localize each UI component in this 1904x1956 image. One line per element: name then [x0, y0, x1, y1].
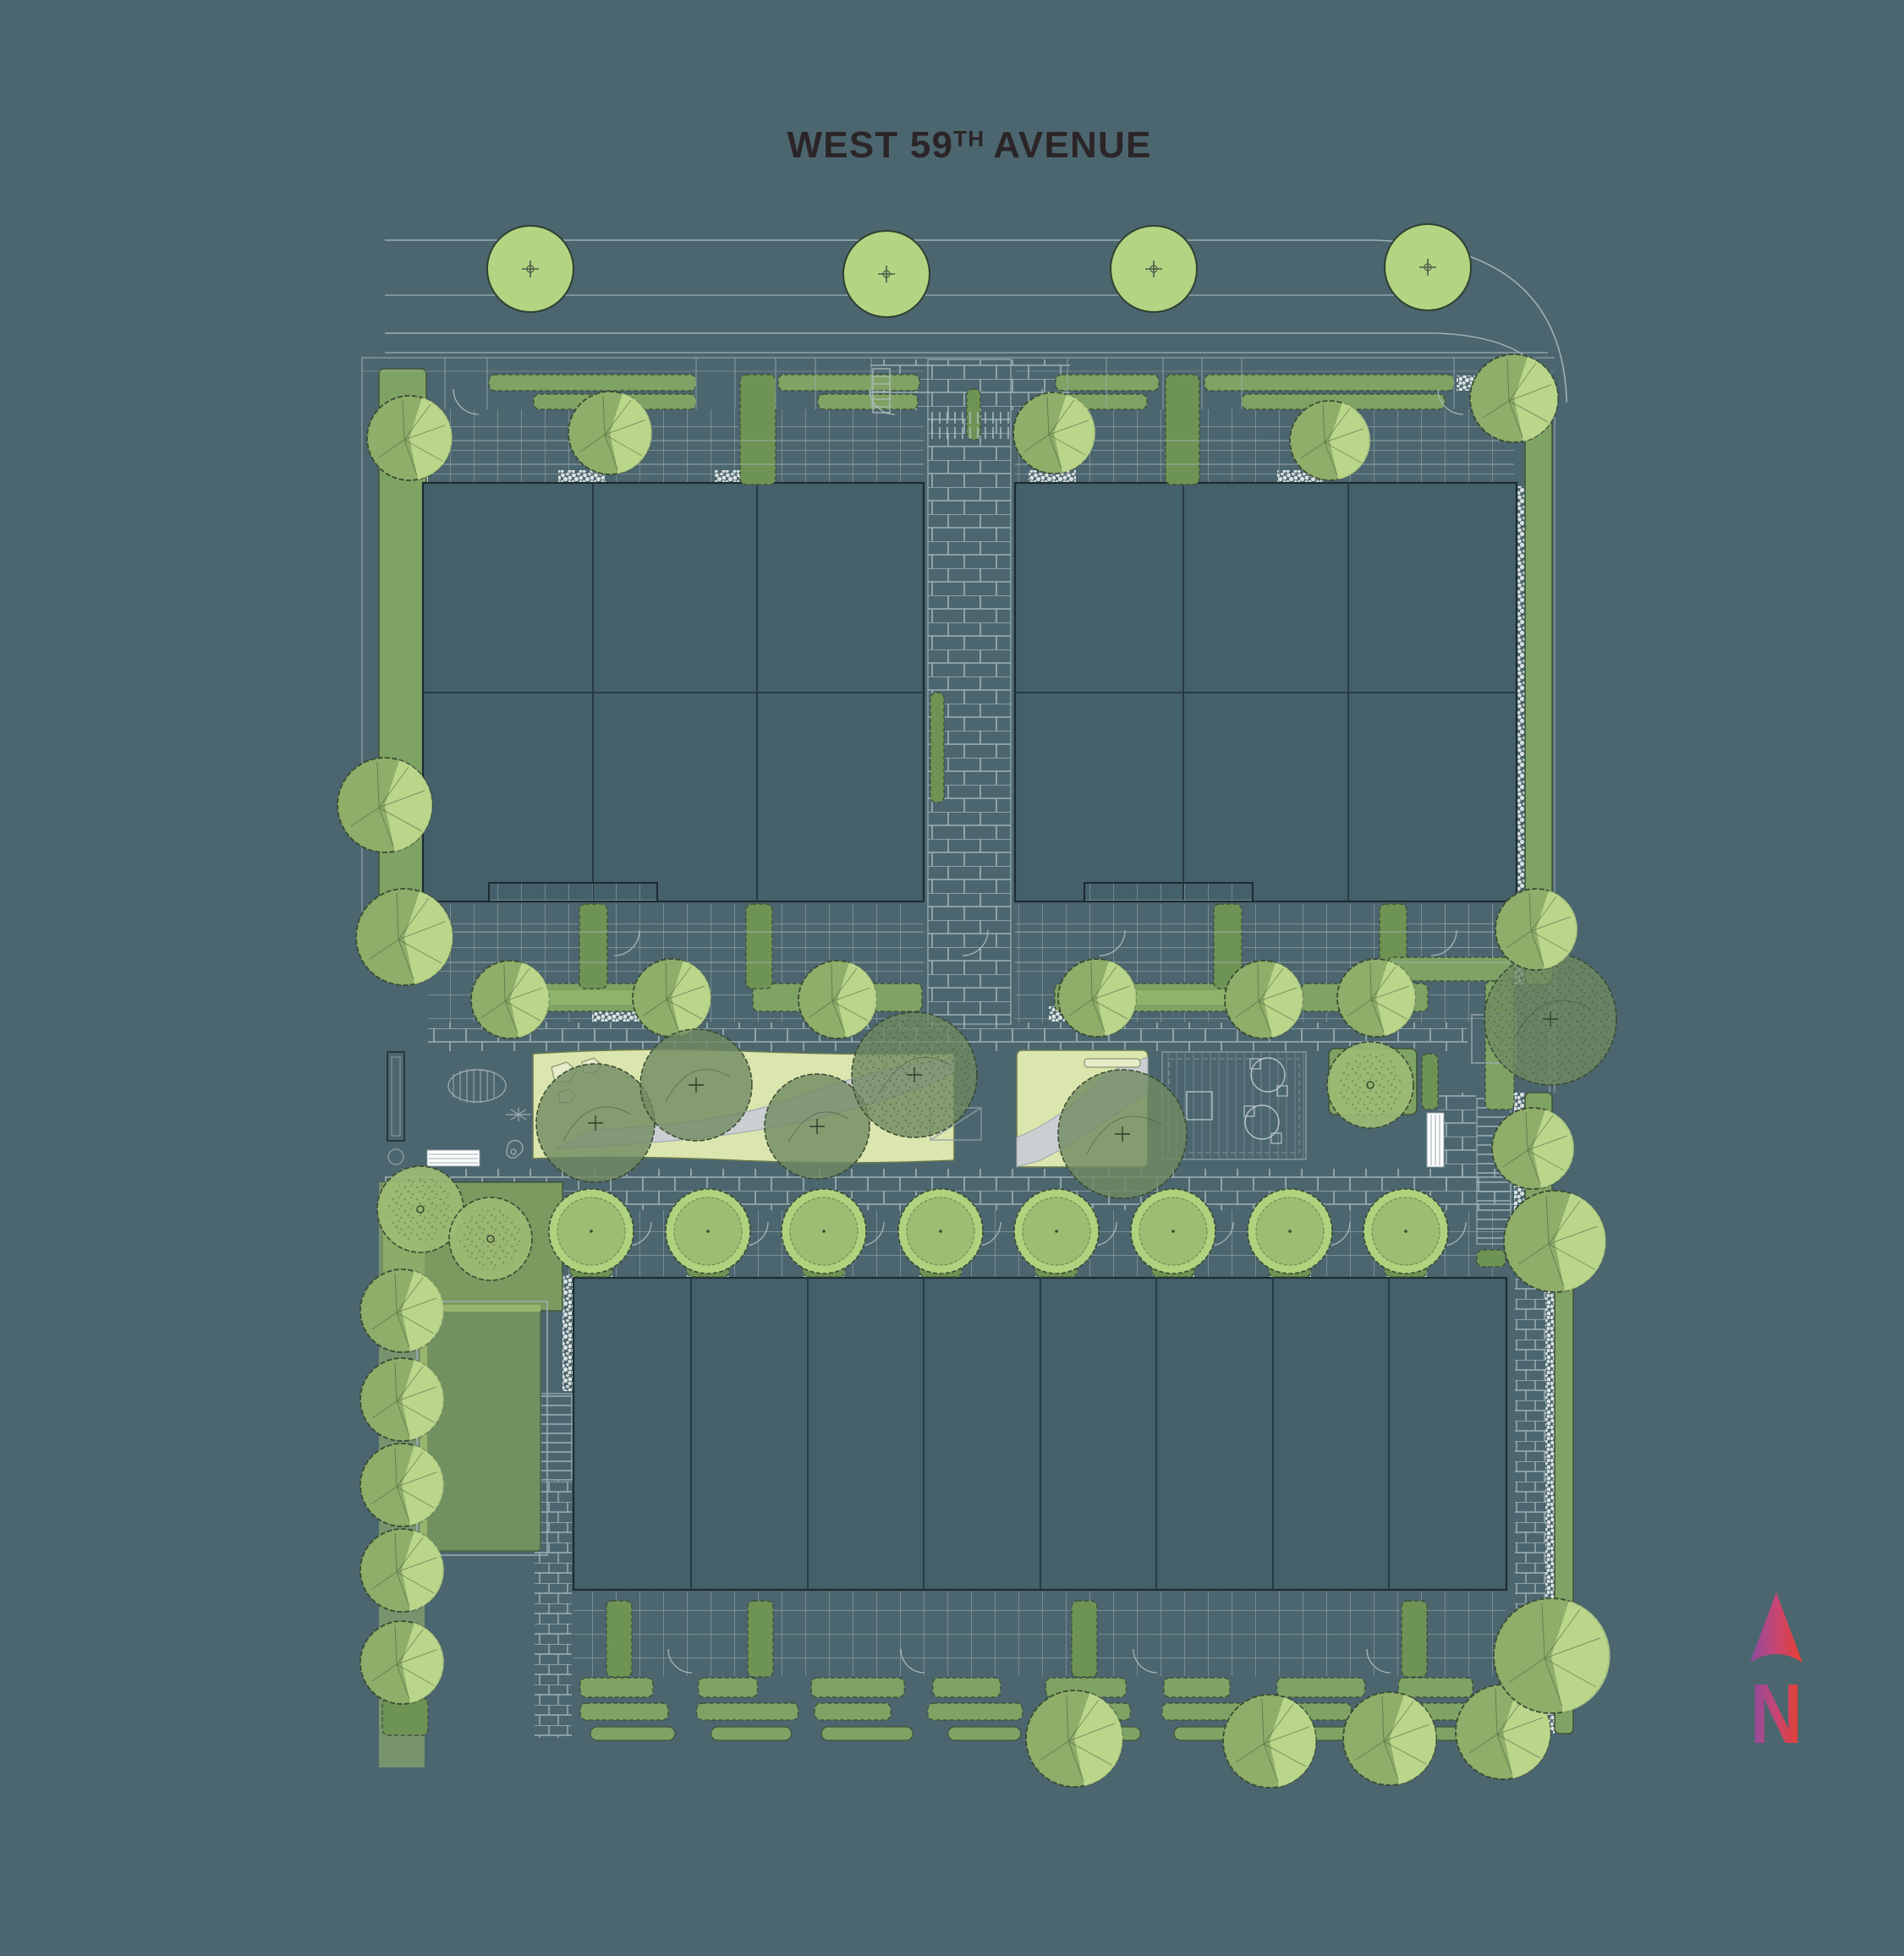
- svg-text:N: N: [1750, 1667, 1802, 1761]
